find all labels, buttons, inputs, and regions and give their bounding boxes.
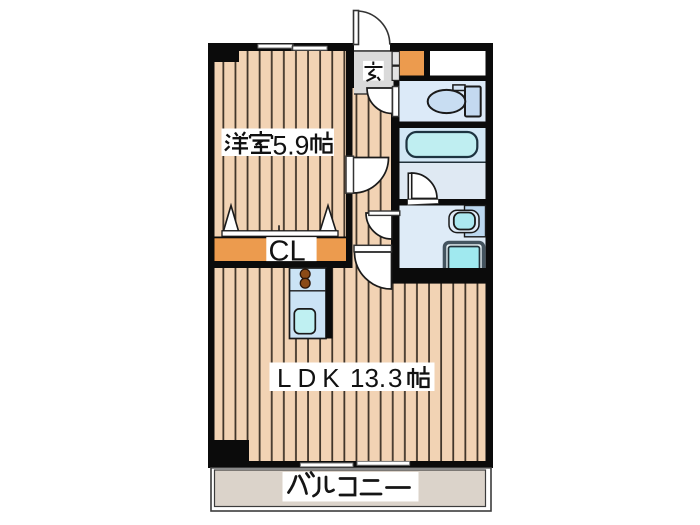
svg-text:5.9: 5.9 xyxy=(273,131,310,161)
svg-text:3: 3 xyxy=(388,363,402,393)
svg-text:LDK: LDK xyxy=(277,363,346,393)
svg-text:13.: 13. xyxy=(350,363,386,393)
svg-text:CL: CL xyxy=(269,236,306,268)
